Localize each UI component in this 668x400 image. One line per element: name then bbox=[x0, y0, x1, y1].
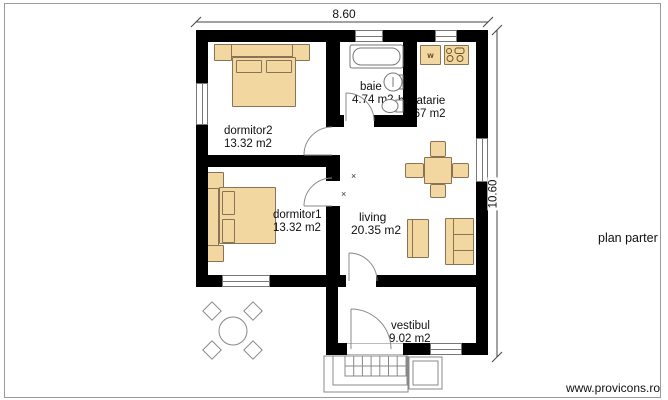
room-label-vestibul: vestibul 9.02 m2 bbox=[389, 320, 431, 345]
room-label-dormitor2: dormitor2 13.32 m2 bbox=[224, 125, 273, 150]
window-vestibul-bottom bbox=[430, 343, 462, 355]
window-living-right bbox=[476, 138, 488, 182]
door-opening-dormitor2 bbox=[326, 127, 340, 155]
room-name: dormitor2 bbox=[224, 125, 273, 138]
bed1-pillow-top bbox=[222, 191, 235, 215]
marker-cross-1: × bbox=[351, 171, 356, 181]
room-name: vestibul bbox=[389, 320, 431, 333]
door-opening-dormitor1 bbox=[326, 181, 340, 206]
bed2-nightstand-left bbox=[214, 44, 232, 61]
stove bbox=[444, 45, 469, 65]
bed1-pillow-bottom bbox=[222, 219, 235, 243]
wall-kitchen-divider bbox=[403, 30, 417, 127]
armchair bbox=[407, 219, 429, 258]
dining-chair-left bbox=[405, 163, 424, 178]
wall-dormitor1-right bbox=[326, 206, 340, 275]
dining-chair-top bbox=[430, 141, 446, 157]
dining-chair-bottom bbox=[430, 184, 446, 198]
wall-dormitor1-right-stub bbox=[326, 167, 340, 181]
wall-bedrooms-divider bbox=[196, 155, 340, 167]
room-area: 20.35 m2 bbox=[351, 224, 401, 237]
washing-machine: w bbox=[420, 45, 441, 65]
bed2-pillow-right bbox=[266, 60, 292, 73]
room-area: 13.32 m2 bbox=[273, 222, 322, 235]
room-area: 4.74 m2 bbox=[352, 94, 394, 107]
room-name: dormitor1 bbox=[273, 209, 322, 222]
dining-table bbox=[424, 157, 452, 184]
room-area: 13.32 m2 bbox=[224, 138, 273, 151]
door-opening-entrance bbox=[347, 343, 403, 355]
wall-dormitor2-right bbox=[326, 30, 340, 127]
door-opening-baie bbox=[344, 115, 374, 127]
window-dormitor1-bottom bbox=[222, 275, 270, 287]
dimension-height-label: 10.60 bbox=[487, 178, 499, 211]
window-baie-top bbox=[355, 30, 383, 42]
room-name: baie bbox=[352, 81, 394, 94]
dimension-width-label: 8.60 bbox=[322, 7, 366, 21]
room-label-dormitor1: dormitor1 13.32 m2 bbox=[273, 209, 322, 234]
window-kitchen-top bbox=[435, 30, 457, 42]
plan-title: plan parter bbox=[598, 231, 658, 245]
watermark: www.provicons.ro bbox=[566, 381, 660, 395]
dining-chair-right bbox=[452, 163, 469, 178]
bed2-pillow-left bbox=[236, 60, 262, 73]
room-label-living: living 20.35 m2 bbox=[351, 211, 401, 237]
washing-machine-label: w bbox=[421, 46, 440, 64]
room-label-baie: baie 4.74 m2 bbox=[352, 81, 394, 106]
window-dormitor2-left bbox=[196, 83, 208, 125]
door-opening-living-vestibul bbox=[346, 275, 376, 287]
bed1-nightstand-bottom bbox=[206, 245, 224, 262]
sofa bbox=[445, 218, 474, 265]
floor-plan: w bbox=[0, 0, 668, 400]
wall-right bbox=[476, 30, 488, 355]
marker-cross-2: × bbox=[341, 189, 346, 199]
